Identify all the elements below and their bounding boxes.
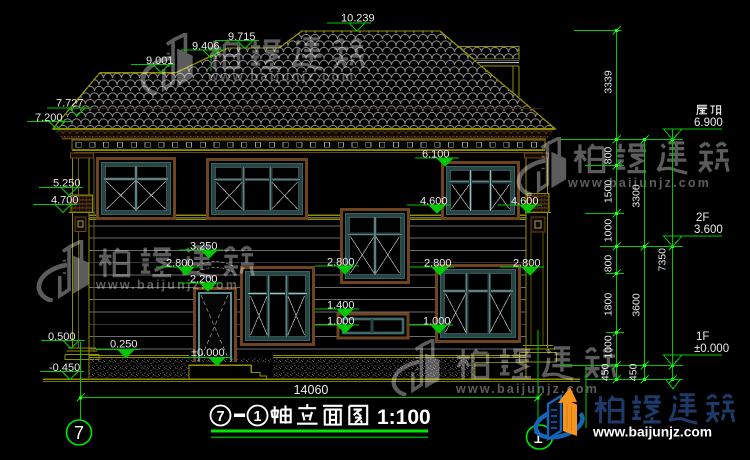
svg-text:3300: 3300: [631, 184, 643, 208]
svg-text:4.700: 4.700: [51, 195, 79, 207]
svg-text:1000: 1000: [603, 219, 615, 243]
svg-text:±0.000: ±0.000: [191, 347, 225, 359]
svg-text:1F: 1F: [696, 331, 709, 343]
svg-text:7.200: 7.200: [35, 112, 63, 124]
svg-text:1000: 1000: [603, 335, 615, 359]
svg-text:0.500: 0.500: [48, 331, 76, 343]
svg-text:www.baijunjz.com: www.baijunjz.com: [592, 425, 712, 440]
svg-text:2.800: 2.800: [327, 257, 355, 269]
svg-text:0.250: 0.250: [110, 339, 138, 351]
svg-text:www.baijunjz.com: www.baijunjz.com: [455, 382, 599, 396]
svg-text:5.250: 5.250: [53, 178, 81, 190]
svg-text:1.000: 1.000: [327, 316, 355, 328]
svg-text:3600: 3600: [631, 293, 643, 317]
svg-text:1800: 1800: [603, 293, 615, 317]
svg-text:4.600: 4.600: [511, 196, 539, 208]
svg-text:1: 1: [253, 409, 261, 425]
svg-text:2.800: 2.800: [424, 258, 452, 270]
svg-text:450: 450: [628, 363, 640, 381]
svg-text:1.400: 1.400: [327, 300, 355, 312]
svg-text:7: 7: [216, 409, 224, 425]
svg-text:3.250: 3.250: [190, 241, 218, 253]
svg-text:www.baijunjz.com: www.baijunjz.com: [207, 68, 355, 83]
svg-text:9.406: 9.406: [192, 41, 220, 53]
svg-text:800: 800: [603, 147, 615, 165]
svg-text:7.727: 7.727: [56, 98, 84, 110]
svg-text:1.000: 1.000: [423, 316, 451, 328]
svg-text:9.001: 9.001: [146, 55, 174, 67]
svg-text:2.800: 2.800: [166, 258, 194, 270]
svg-text:450: 450: [600, 363, 612, 381]
svg-text:3339: 3339: [603, 70, 615, 94]
svg-text:7: 7: [74, 423, 84, 443]
svg-text:1500: 1500: [603, 180, 615, 204]
svg-text:7350: 7350: [657, 248, 669, 272]
svg-text:6.100: 6.100: [422, 149, 450, 161]
svg-text:4.600: 4.600: [420, 196, 448, 208]
svg-text:±0.000: ±0.000: [694, 343, 729, 355]
svg-text:10.239: 10.239: [341, 13, 375, 25]
svg-text:-0.450: -0.450: [49, 362, 80, 374]
svg-text:2.200: 2.200: [190, 274, 218, 286]
svg-text:2.800: 2.800: [513, 258, 541, 270]
svg-text:800: 800: [603, 255, 615, 273]
svg-text:2F: 2F: [696, 212, 709, 224]
svg-text:9.715: 9.715: [228, 31, 256, 43]
svg-text:3.600: 3.600: [694, 224, 723, 236]
svg-text:14060: 14060: [294, 383, 329, 397]
svg-text:1:100: 1:100: [377, 406, 431, 429]
svg-text:6.900: 6.900: [694, 117, 723, 129]
